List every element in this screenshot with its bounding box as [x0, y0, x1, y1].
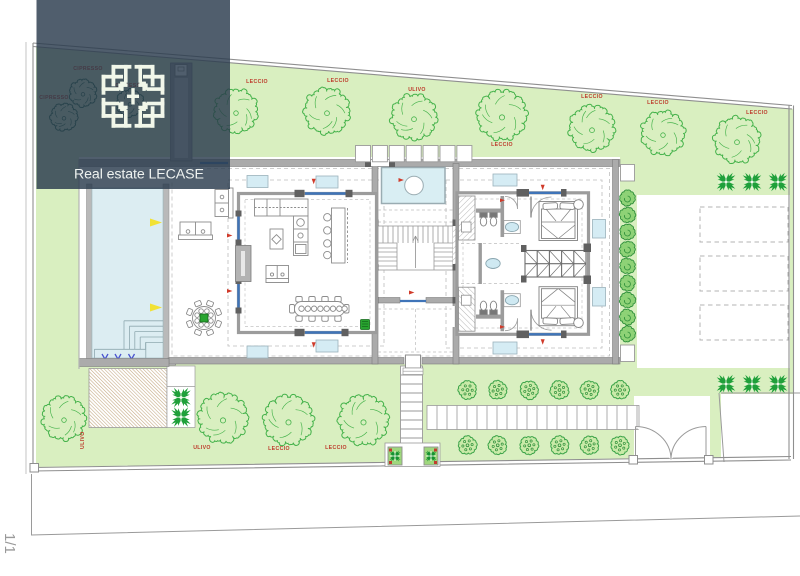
- svg-text:LECCIO: LECCIO: [327, 78, 349, 84]
- svg-text:LECCIO: LECCIO: [491, 142, 513, 148]
- svg-text:ULIVO: ULIVO: [80, 431, 86, 449]
- svg-text:LECCIO: LECCIO: [268, 446, 290, 452]
- svg-text:LECCIO: LECCIO: [581, 94, 603, 100]
- svg-text:LECCIO: LECCIO: [746, 110, 768, 116]
- svg-text:Real estate LECASE: Real estate LECASE: [74, 167, 204, 183]
- svg-text:1/1: 1/1: [1, 533, 18, 554]
- svg-text:LECCIO: LECCIO: [246, 79, 268, 85]
- svg-text:LECCIO: LECCIO: [325, 445, 347, 451]
- svg-text:ULIVO: ULIVO: [408, 87, 426, 93]
- svg-text:LECCIO: LECCIO: [647, 100, 669, 106]
- svg-text:ULIVO: ULIVO: [193, 445, 211, 451]
